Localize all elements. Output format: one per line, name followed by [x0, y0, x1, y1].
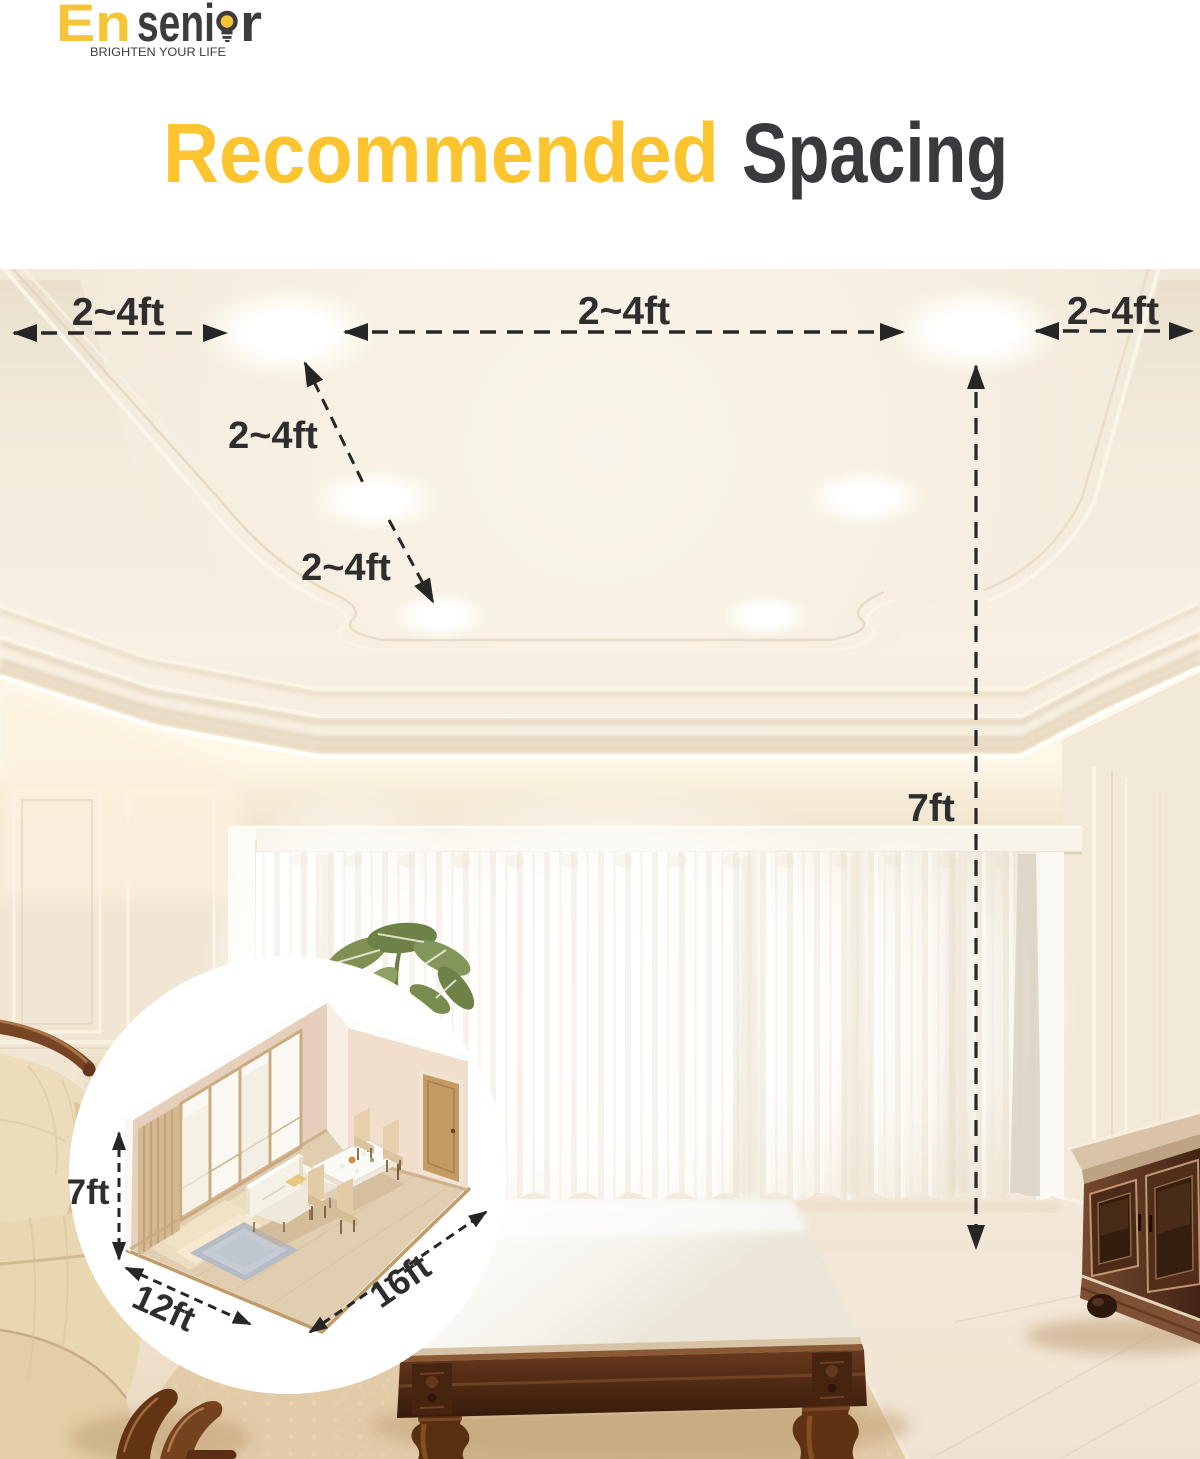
- svg-text:r: r: [240, 0, 262, 53]
- svg-text:7ft: 7ft: [907, 787, 955, 830]
- svg-text:7ft: 7ft: [67, 1173, 110, 1212]
- svg-text:Spacing: Spacing: [742, 106, 1008, 200]
- svg-text:2~4ft: 2~4ft: [578, 290, 670, 333]
- svg-text:2~4ft: 2~4ft: [1067, 290, 1159, 333]
- svg-text:2~4ft: 2~4ft: [72, 291, 164, 334]
- svg-text:2~4ft: 2~4ft: [301, 547, 391, 589]
- svg-text:2~4ft: 2~4ft: [228, 415, 318, 457]
- svg-text:BRIGHTEN YOUR LIFE: BRIGHTEN YOUR LIFE: [90, 45, 226, 59]
- svg-text:Recommended: Recommended: [163, 106, 719, 200]
